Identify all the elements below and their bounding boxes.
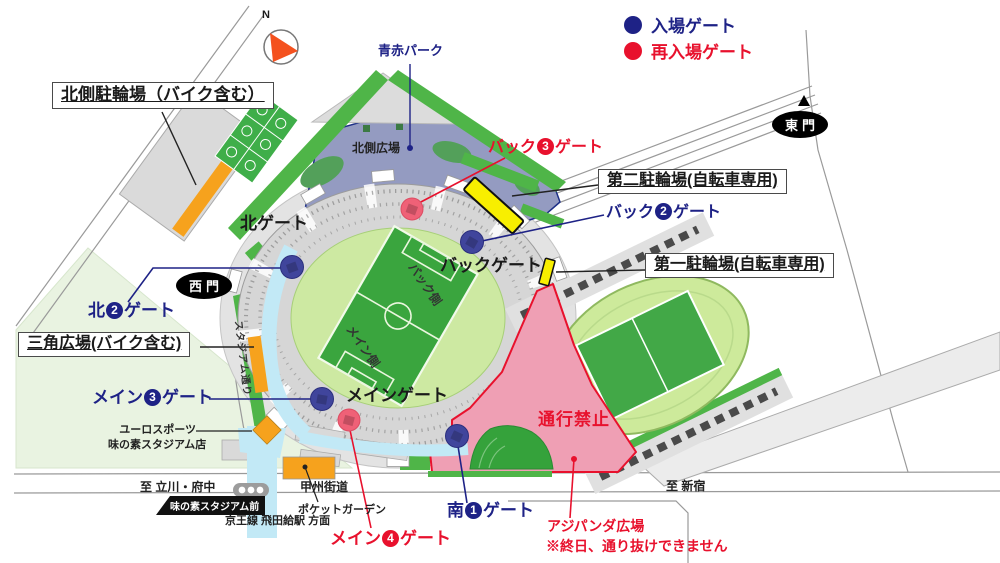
back3-num: 3 (537, 138, 554, 155)
west-gate-oval: 西門 (176, 272, 232, 299)
north-gate-label: 北ゲート (240, 214, 308, 234)
legend-entry-label: 入場ゲート (651, 12, 736, 37)
east-gate-oval: 東門 (772, 111, 828, 138)
stadium-access-map: 入場ゲート 再入場ゲート N 青赤パーク 北側広場 バック側 メイン側 通行禁止… (0, 0, 1000, 563)
pocket-garden-label: ポケットガーデン (298, 504, 386, 517)
legend-entry-row: 入場ゲート (624, 12, 736, 37)
south1-pre: 南 (447, 501, 464, 520)
main3-num: 3 (144, 389, 161, 406)
gate-label-south1: 南1ゲート (447, 501, 534, 521)
south1-num: 1 (465, 502, 482, 519)
keio-line-label: 京王線 飛田給駅 方面 (225, 515, 330, 528)
gate-label-main4: メイン4ゲート (330, 529, 451, 549)
entry-gate-dot-icon (624, 16, 642, 34)
main-gate-label: メインゲート (346, 386, 448, 406)
bike-parking-2-label: 第二駐輪場(自転車専用) (598, 169, 787, 194)
north-plaza-label: 北側広場 (352, 142, 400, 156)
pocket-garden-area (283, 457, 335, 479)
north2-pre: 北 (88, 301, 105, 320)
eurosport-label-1: ユーロスポーツ (118, 424, 196, 437)
station-name-badge: 味の素スタジアム前 (156, 496, 265, 515)
compass-icon (264, 30, 298, 64)
reentry-gate-dot-icon (624, 42, 642, 60)
north2-post: ゲート (124, 301, 175, 320)
koshu-kaido-label: 甲州街道 (300, 481, 348, 495)
main4-post: ゲート (400, 529, 451, 548)
gate-label-back3: バック3ゲート (488, 138, 603, 157)
back2-pre: バック (606, 204, 654, 221)
back2-post: ゲート (673, 204, 721, 221)
main4-num: 4 (382, 530, 399, 547)
gate-label-main3: メイン3ゲート (92, 388, 213, 408)
main4-pre: メイン (330, 529, 381, 548)
to-tachikawa-label: 至 立川・府中 (140, 481, 215, 495)
north2-num: 2 (106, 302, 123, 319)
eurosport-label-2: 味の素スタジアム店 (108, 439, 196, 452)
no-passage-label: 通行禁止 (538, 410, 610, 430)
bike-parking-1-label: 第一駐輪場(自転車専用) (645, 253, 834, 278)
station-symbol (233, 483, 269, 497)
ajipanda-note-label: ※終日、通り抜けできません (546, 538, 728, 554)
aoaka-park-label: 青赤パーク (378, 44, 443, 59)
triangle-plaza-label: 三角広場(バイク含む) (18, 332, 190, 357)
main3-post: ゲート (162, 388, 213, 407)
gate-label-back2: バック2ゲート (606, 203, 721, 222)
back-gate-label: バックゲート (440, 256, 542, 276)
to-shinjuku-label: 至 新宿 (666, 480, 705, 494)
back2-num: 2 (655, 203, 672, 220)
south1-post: ゲート (483, 501, 534, 520)
legend-reentry-label: 再入場ゲート (651, 38, 753, 63)
legend-reentry-row: 再入場ゲート (624, 38, 753, 63)
compass-north-label: N (262, 9, 270, 22)
main3-pre: メイン (92, 388, 143, 407)
ajipanda-plaza-label: アジパンダ広場 (547, 518, 644, 534)
gate-label-north2: 北2ゲート (88, 301, 175, 321)
back3-pre: バック (488, 139, 536, 156)
north-bike-parking-label: 北側駐輪場（バイク含む） (52, 82, 274, 109)
back3-post: ゲート (555, 139, 603, 156)
